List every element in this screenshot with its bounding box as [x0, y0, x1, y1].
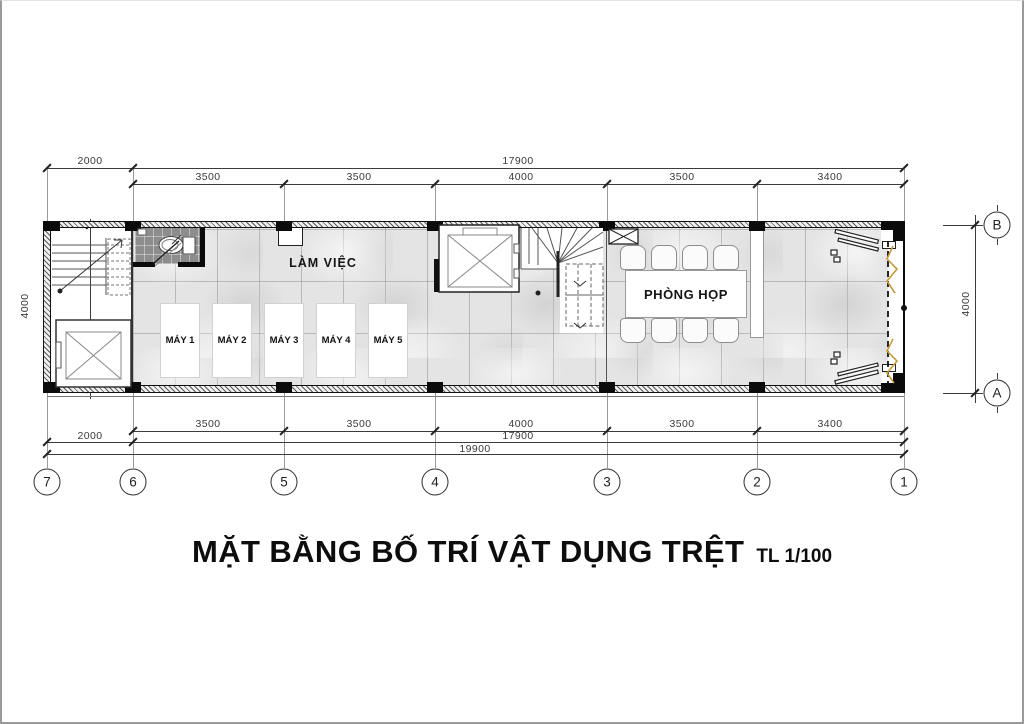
machine-label: MÁY 4 — [322, 335, 351, 346]
chair — [682, 245, 708, 270]
grid-bubble-label: 1 — [900, 475, 908, 490]
grid-bubble-label: 7 — [43, 475, 51, 490]
grid-line-7-top — [47, 169, 48, 223]
elevator-left — [56, 320, 131, 387]
chair — [713, 245, 739, 270]
grid-bubble-label: A — [992, 386, 1001, 401]
wall-top — [47, 221, 904, 228]
column-marker — [749, 221, 765, 231]
grid-bubble-label: 4 — [431, 475, 439, 490]
grid-bubble-5: 5 — [271, 469, 298, 496]
bubble-stub-a-bottom — [997, 407, 998, 413]
work-area-label: LÀM VIỆC — [289, 256, 357, 270]
grid-line-2-top — [757, 184, 758, 221]
door-frame-top-right — [882, 241, 896, 249]
grid-bubble-1: 1 — [891, 469, 918, 496]
chair — [682, 318, 708, 343]
wall-bottom — [47, 385, 904, 393]
dim-bottom-seg-3: 4000 — [509, 418, 534, 430]
wall-bottom-outer-line — [47, 396, 904, 397]
dim-ext-right-b — [943, 225, 983, 226]
grid-line-3-top — [607, 184, 608, 221]
wc-floor — [135, 228, 205, 264]
dim-left-height: 4000 — [19, 294, 31, 319]
drawing-scale: TL 1/100 — [756, 546, 832, 568]
dim-bottom-seg-5: 3400 — [818, 418, 843, 430]
dim-line-right-height — [975, 215, 976, 403]
chair — [651, 318, 677, 343]
floor-plan-canvas: 2000 17900 3500 3500 4000 3500 3400 3500… — [0, 0, 1024, 724]
column-marker — [749, 382, 765, 393]
wall-left — [43, 221, 51, 393]
chair — [620, 318, 646, 343]
dim-top-seg-2: 3500 — [347, 171, 372, 183]
column-marker — [599, 221, 615, 231]
column-marker — [599, 382, 615, 393]
dim-bottom-seg-2: 3500 — [347, 418, 372, 430]
meeting-table: PHÒNG HỌP — [625, 270, 747, 318]
chair — [620, 245, 646, 270]
dim-right-height: 4000 — [960, 292, 972, 317]
grid-line-1-top — [904, 169, 905, 221]
wc-wall-bottom-left — [133, 262, 155, 267]
grid-bubble-B: B — [984, 212, 1011, 239]
grid-line-4-top — [435, 184, 436, 221]
drawing-title-bar: MẶT BẰNG BỐ TRÍ VẬT DỤNG TRỆT TL 1/100 — [2, 534, 1022, 570]
dim-top-seg-3: 4000 — [509, 171, 534, 183]
corner-notch-bottom-right — [881, 373, 893, 383]
dim-top-seg-1: 3500 — [196, 171, 221, 183]
dim-bottom-seg-1: 3500 — [196, 418, 221, 430]
grid-line-6-top — [133, 169, 134, 221]
column-marker — [43, 221, 60, 231]
partition-grid-6 — [131, 228, 133, 386]
grid-bubble-6: 6 — [120, 469, 147, 496]
dim-line-left-height — [90, 219, 91, 399]
column-marker — [43, 382, 60, 393]
dim-top-overall: 17900 — [502, 155, 533, 167]
wall-right-outer-line — [903, 221, 905, 393]
corner-notch-top-right — [881, 230, 893, 241]
dim-top-left-offset: 2000 — [78, 155, 103, 167]
chair — [713, 318, 739, 343]
partition-grid-3 — [606, 228, 607, 386]
door-frame-bottom-right — [882, 364, 896, 372]
machine-5: MÁY 5 — [368, 303, 408, 378]
grid-line-7-bottom — [47, 393, 48, 468]
entrance-strip — [888, 228, 903, 386]
drawing-title: MẶT BẰNG BỐ TRÍ VẬT DỤNG TRỆT — [192, 534, 744, 570]
grid-line-5-top — [284, 184, 285, 221]
grid-bubble-label: 5 — [280, 475, 288, 490]
bubble-stub-b-top — [997, 205, 998, 211]
dim-bottom-seg-4: 3500 — [670, 418, 695, 430]
column-marker — [276, 221, 292, 231]
machine-3: MÁY 3 — [264, 303, 304, 378]
column-marker — [125, 221, 141, 231]
dim-bottom-left-offset: 2000 — [78, 430, 103, 442]
grid-bubble-3: 3 — [594, 469, 621, 496]
machine-label: MÁY 1 — [166, 335, 195, 346]
staircase-left — [52, 238, 131, 295]
chair — [651, 245, 677, 270]
column-marker — [125, 382, 141, 393]
dim-line-top-segments — [133, 184, 904, 185]
machine-2: MÁY 2 — [212, 303, 252, 378]
partition-grid-2 — [750, 228, 764, 338]
grid-bubble-4: 4 — [422, 469, 449, 496]
machine-1: MÁY 1 — [160, 303, 200, 378]
wc-wall-right — [200, 228, 205, 267]
meeting-room-label: PHÒNG HỌP — [644, 287, 728, 302]
dim-line-top-overall — [47, 168, 904, 169]
machine-label: MÁY 3 — [270, 335, 299, 346]
machine-4: MÁY 4 — [316, 303, 356, 378]
grid-bubble-label: 2 — [753, 475, 761, 490]
grid-bubble-label: 6 — [129, 475, 137, 490]
grid-bubble-2: 2 — [744, 469, 771, 496]
grid-bubble-label: B — [992, 218, 1001, 233]
dim-ext-right-a — [943, 393, 983, 394]
column-marker — [427, 221, 443, 231]
grid-bubble-7: 7 — [34, 469, 61, 496]
column-marker — [427, 382, 443, 393]
machine-label: MÁY 2 — [218, 335, 247, 346]
bubble-stub-b-bottom — [997, 239, 998, 245]
dim-top-seg-5: 3400 — [818, 171, 843, 183]
dim-bottom-overall: 17900 — [502, 430, 533, 442]
grid-bubble-A: A — [984, 380, 1011, 407]
dim-top-seg-4: 3500 — [670, 171, 695, 183]
bubble-stub-a-top — [997, 373, 998, 379]
dim-bottom-total: 19900 — [459, 443, 490, 455]
column-marker — [276, 382, 292, 393]
grid-bubble-label: 3 — [603, 475, 611, 490]
machine-label: MÁY 5 — [374, 335, 403, 346]
